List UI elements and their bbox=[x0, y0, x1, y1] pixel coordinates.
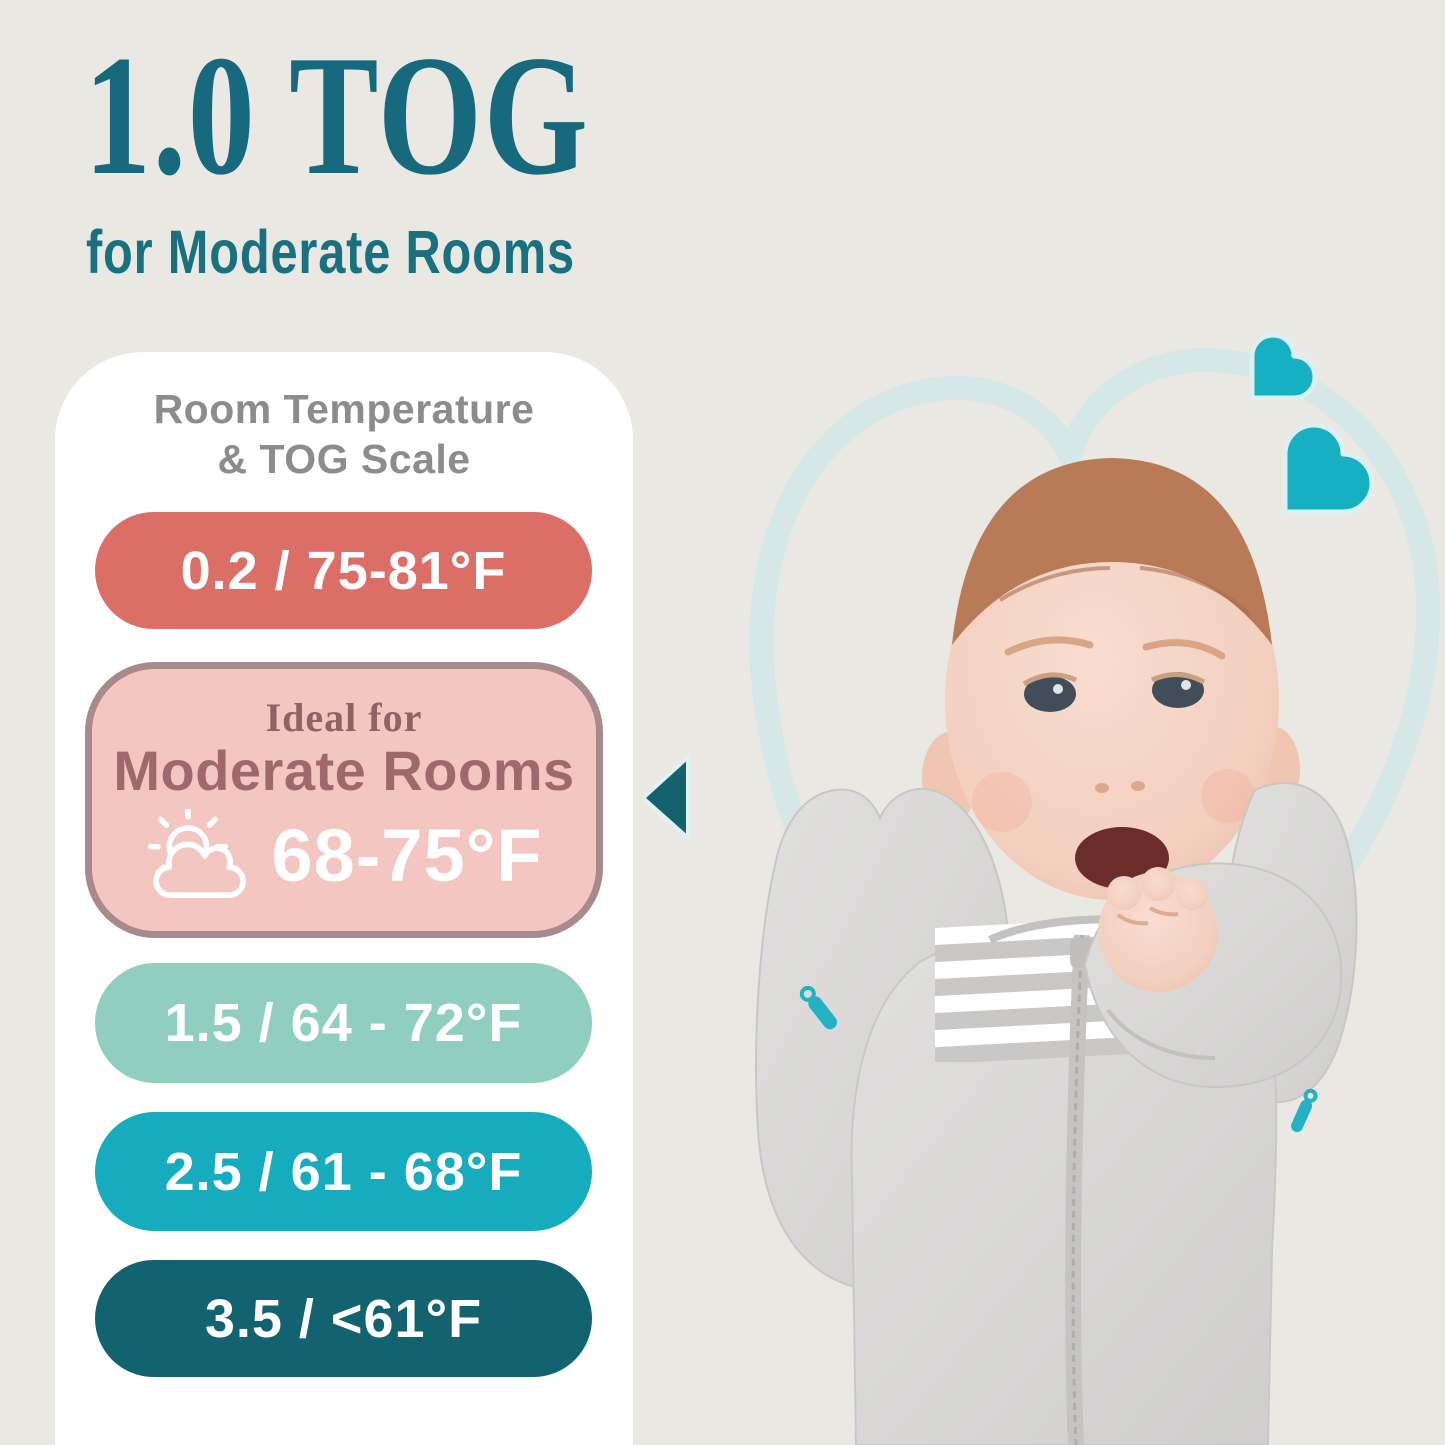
temp-row: 68-75°F bbox=[145, 809, 542, 903]
tog-pill-label: 3.5 / <61°F bbox=[205, 1288, 482, 1350]
tog-pill-1.5: 1.5 / 64 - 72°F bbox=[95, 963, 592, 1083]
tog-pill-label: 2.5 / 61 - 68°F bbox=[165, 1141, 523, 1203]
tog-pill-label: 1.5 / 64 - 72°F bbox=[165, 992, 523, 1054]
tog-pill-2.5: 2.5 / 61 - 68°F bbox=[95, 1112, 592, 1231]
tog-pill-1.0-highlighted: Ideal for Moderate Rooms bbox=[85, 662, 603, 938]
ideal-for-label: Ideal for bbox=[266, 697, 423, 739]
page-title: 1.0 TOG bbox=[84, 30, 590, 202]
temp-range-value: 68-75°F bbox=[271, 819, 542, 893]
card-title-line1: Room Temperature bbox=[154, 386, 535, 432]
tog-pill-3.5: 3.5 / <61°F bbox=[95, 1260, 592, 1377]
baby-hand bbox=[1098, 867, 1218, 992]
tog-infographic: 1.0 TOG for Moderate Rooms Room Temperat… bbox=[0, 0, 1445, 1445]
sun-behind-cloud-icon bbox=[145, 809, 257, 903]
card-title-line2: & TOG Scale bbox=[217, 436, 470, 482]
selected-tog-pointer-icon bbox=[643, 757, 688, 838]
room-type-label: Moderate Rooms bbox=[113, 739, 574, 803]
heart-icon-small bbox=[1252, 335, 1315, 398]
baby-photo bbox=[756, 458, 1357, 1445]
tog-scale-card: Room Temperature & TOG Scale 0.2 / 75-81… bbox=[55, 352, 633, 1445]
page-subtitle: for Moderate Rooms bbox=[86, 222, 575, 283]
tog-pill-label: 0.2 / 75-81°F bbox=[181, 540, 507, 602]
card-title: Room Temperature & TOG Scale bbox=[55, 384, 633, 484]
tog-pill-0.2: 0.2 / 75-81°F bbox=[95, 512, 592, 629]
